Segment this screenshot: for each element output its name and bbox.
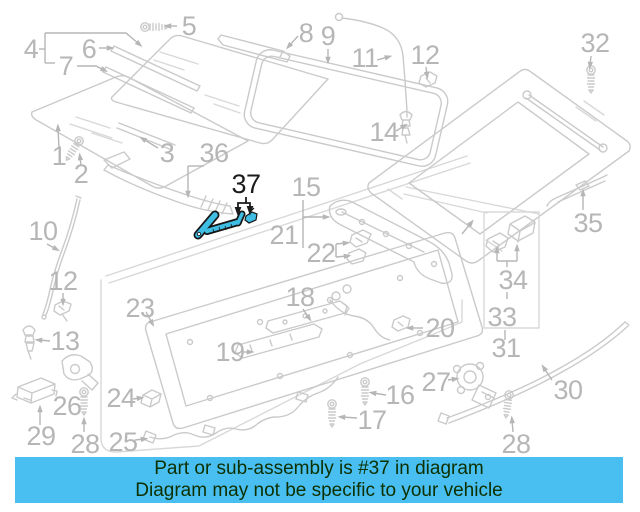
mount-bracket [62,355,98,390]
cable-clip-37 [245,212,257,223]
leader-arrowhead [337,414,345,419]
callout-13: 13 [50,326,79,356]
callout-11: 11 [351,43,378,73]
callout-18: 18 [285,282,314,312]
guide-rod-35 [547,175,607,206]
leader-arrowhead [400,124,408,130]
clip-icon [347,249,366,264]
bolt-icon [328,400,336,427]
callout-32: 32 [580,28,609,58]
drive-cable [438,322,629,424]
callout-6: 6 [82,34,97,64]
callout-17: 17 [357,405,386,435]
callout-20: 20 [425,313,454,343]
leader-arrowhead [34,338,42,343]
glass-panel [112,35,329,143]
control-module [12,378,57,403]
leader-arrowhead [55,123,60,131]
leader-arrowhead [37,404,42,412]
callout-24: 24 [106,383,136,413]
leader-arrowhead [384,55,392,60]
callout-12: 12 [48,266,77,296]
callout-36: 36 [199,138,228,168]
callout-26: 26 [52,391,81,421]
callout-9: 9 [321,21,336,51]
callout-28: 28 [70,429,99,459]
banner: Part or sub-assembly is #37 in diagram D… [15,457,623,503]
callout-19: 19 [215,337,244,367]
screw-icon [141,23,168,31]
drain-valve-icon [23,326,35,359]
screw-icon [587,66,595,93]
callout-28: 28 [501,429,530,459]
callout-16: 16 [385,380,414,410]
leader-arrowhead [247,349,255,354]
callout-5: 5 [182,11,197,41]
callout-15: 15 [291,172,320,202]
leader-arrowhead [139,137,147,143]
callout-1: 1 [52,141,67,171]
leader-arrowhead [405,325,413,330]
banner-line-2: Diagram may not be specific to your vehi… [135,480,503,502]
leader-arrowhead [510,415,515,423]
callout-34: 34 [498,265,528,295]
wiring-harness [143,285,390,443]
leader-arrowhead [342,241,350,246]
callout-23: 23 [125,293,154,323]
seal-strips [103,46,200,150]
callout-14: 14 [369,117,399,147]
bolt-icon [502,390,514,418]
parts-diagram-image: 1234567891011121213141516171819202122232… [0,0,640,512]
callout-21: 21 [269,220,298,250]
pivot-hole [197,232,200,235]
leader-arrowhead [369,391,377,396]
leader-arrowhead [541,364,548,372]
callout-8: 8 [299,18,314,48]
callout-37: 37 [231,169,260,199]
clip-group-34 [486,216,535,252]
callout-25: 25 [108,427,137,457]
callout-4: 4 [24,34,39,64]
rear-channel [329,200,452,283]
callout-12: 12 [410,40,439,70]
callout-30: 30 [553,375,582,405]
callout-27: 27 [421,367,450,397]
diagram-canvas: 1234567891011121213141516171819202122232… [0,0,640,512]
clip-icon [141,390,161,407]
highlighted-part-37 [197,208,257,236]
leader-arrowhead [514,243,519,251]
clip-icon [392,316,410,331]
callout-29: 29 [26,421,55,451]
callout-33: 33 [487,302,516,332]
callout-7: 7 [59,51,74,81]
callout-2: 2 [74,159,89,189]
callout-35: 35 [573,208,602,238]
callout-3: 3 [160,138,175,168]
screw-icon [361,378,369,405]
leader-arrowhead [323,214,331,219]
banner-line-1: Part or sub-assembly is #37 in diagram [154,458,483,480]
callout-31: 31 [491,333,520,363]
callout-22: 22 [306,238,335,268]
leader-line [77,66,104,70]
leader-arrowhead [81,416,86,424]
callout-10: 10 [28,216,57,246]
